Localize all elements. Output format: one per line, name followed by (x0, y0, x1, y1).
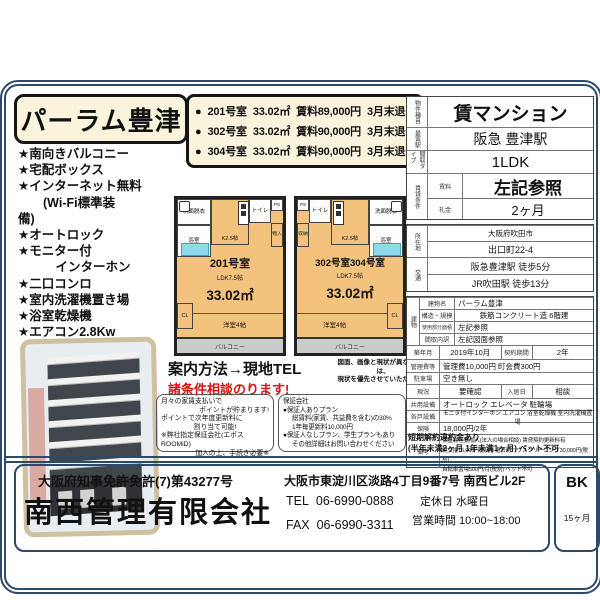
spec-label: 最寄駅 (407, 128, 428, 150)
feature-item: ★宅配ボックス (18, 162, 180, 178)
spec-table: 物件種目 賃マンション 最寄駅 阪急 豊津駅 間取タイプ 1LDK 賃貸条件 賃… (406, 96, 594, 468)
spec-group-building: 建物 建物名 パーラム豊津 構造・規模 鉄筋コンクリート造 6階建 使用部分面積 (407, 297, 593, 345)
kitchen-label: K2.5帖 (222, 236, 239, 242)
spec-group-address: 所在地 大阪府吹田市 出口町22-4 (407, 225, 593, 257)
short-term-line: (半年未満2ヶ月 1年未満1ヶ月) ペット不可 (408, 443, 598, 454)
guide-method: 案内方法→現地TEL (168, 358, 301, 379)
spec-row: 使用部分面積 左記参照 (420, 321, 593, 333)
spec-sublabel: 契約期間 (502, 346, 533, 359)
unit-area: 33.02㎡ (253, 106, 290, 118)
unit-room: 304号室 (207, 146, 246, 158)
feature-item: インターホン (18, 259, 180, 275)
license-number: 大阪府知事免許免許(7)第43277号 (38, 471, 233, 490)
spec-sublabel: 礼金 (428, 199, 463, 219)
spec-group-access: 交通 阪急豊津駅 徒歩5分 JR吹田駅 徒歩13分 (407, 257, 593, 291)
spec-sublabel: 構造・規模 (420, 310, 455, 321)
feature-list: ★南向きバルコニー ★宅配ボックス ★インターネット無料 (Wi-Fi標準装 備… (18, 146, 180, 340)
spec-value: モニタ付インターホン エアコン 浴室乾燥機 室内洗濯機置場 (440, 411, 593, 422)
spec-sublabel: 各戸設備 (407, 411, 440, 422)
short-term-note: 短期解約違約金あり (半年未満2ヶ月 1年未満1ヶ月) ペット不可 (408, 432, 598, 454)
toilet-label: トイレ (252, 208, 269, 214)
plan-layout: LDK7.5帖 (303, 271, 397, 280)
tel-label: TEL (286, 494, 309, 508)
spec-row-layout: 間取タイプ 1LDK (407, 150, 593, 173)
spec-value: 鉄筋コンクリート造 6階建 (455, 310, 593, 321)
guarantor-info-box: 保証会社 ●保証人ありプラン 総賃料(家賃、共益費を含む)の30% 1年毎更新料… (278, 394, 406, 452)
spec-row-rent: 賃料 左記参照 (428, 174, 593, 198)
room-divider (297, 313, 387, 314)
closet-label: CL (391, 313, 398, 319)
spec-label: 物件種目 (407, 97, 428, 127)
ps-label: PS (300, 203, 306, 208)
spec-value: 阪急豊津駅 徒歩5分 (428, 258, 593, 274)
spec-row-unit-equip: 各戸設備 モニタ付インターホン エアコン 浴室乾燥機 室内洗濯機置場 (407, 410, 593, 422)
ps-cell: PS (297, 199, 309, 211)
spec-value: 空き無し (440, 373, 593, 384)
closed-day: 定休日 水曜日 (420, 493, 489, 509)
spec-label: 間取タイプ (407, 151, 428, 173)
spec-group-terms: 賃貸条件 賃料 左記参照 礼金 2ヶ月 (407, 173, 593, 219)
balcony-label: バルコニー (215, 342, 245, 351)
guarantor-line: ●保証人ありプラン (283, 407, 401, 416)
spec-label: 交通 (407, 258, 428, 291)
toilet-cell: トイレ (309, 199, 331, 223)
feature-item: ★浴室乾燥機 (18, 308, 180, 324)
spec-row-status: 現況 要確認 入居日 相談 (407, 384, 593, 398)
plan-room-number: 201号室 (183, 255, 277, 271)
spec-sublabel: 管理費等 (407, 360, 440, 372)
spec-sublabel: 間取内訳 (420, 334, 455, 345)
spec-sublabel: 現況 (407, 385, 440, 398)
spec-row-station: 最寄駅 阪急 豊津駅 (407, 127, 593, 150)
spec-value: 賃マンション (428, 97, 593, 127)
spec-row: 建物名 パーラム豊津 (420, 298, 593, 309)
spec-sublabel: 共用設備 (407, 399, 440, 410)
company-address: 大阪市東淀川区淡路4丁目9番7号 南西ビル2F (284, 472, 525, 489)
feature-item: ★室内洗濯機置き場 (18, 292, 180, 308)
plan-main-label: 302号室304号室 LDK7.5帖 33.02㎡ (303, 255, 397, 302)
feature-item: (Wi-Fi標準装 (18, 195, 180, 211)
storage-label: 物入 (272, 232, 282, 237)
spec-sublabel: 築年月 (407, 346, 440, 359)
kitchen-label: K2.5帖 (342, 236, 359, 242)
unit-listing-box: ●201号室33.02㎡賃料89,000円3月末退去 ●302号室33.02㎡賃… (186, 94, 424, 168)
spec-row: 阪急豊津駅 徒歩5分 (428, 258, 593, 274)
floorplan-201: 洗面脱衣 浴室 K2.5帖 トイレ PS 物入 201号室 LDK7.5帖 33… (174, 196, 286, 356)
unit-rent: 賃料90,000円 (296, 126, 361, 138)
spec-value: 左記参照 (463, 174, 593, 198)
unit-room: 201号室 (207, 106, 246, 118)
points-line: ポイントが貯まります! (161, 407, 269, 416)
fax-number: 06-6990-3311 (317, 518, 394, 532)
guarantor-title: 保証会社 (283, 398, 401, 407)
bk-label: BK (556, 474, 598, 491)
storage-label: 収納 (298, 232, 308, 237)
spec-label: 賃貸条件 (407, 174, 428, 219)
spec-row-fees: 管理費等 管理費10,000円 町会費300円 (407, 359, 593, 372)
kitchen-stove-icon (238, 201, 249, 225)
unit-listing-row: ●302号室33.02㎡賃料90,000円3月末退去 (195, 122, 415, 142)
spec-row-built: 築年月 2019年10月 契約期間 2年 (407, 345, 593, 359)
ps-label: PS (274, 203, 280, 208)
washer-icon (179, 201, 190, 212)
balcony-strip: バルコニー (297, 337, 403, 353)
closet-cell: CL (177, 303, 193, 329)
spec-sublabel: 入居日 (502, 385, 533, 398)
points-line: ※弊社指定保証会社(エポスROOMiD) (161, 432, 269, 449)
balcony-strip: バルコニー (177, 337, 283, 353)
feature-item: ★南向きバルコニー (18, 146, 180, 162)
feature-item: ★オートロック (18, 227, 180, 243)
spec-sublabel: 賃料 (428, 174, 463, 198)
spec-sublabel: 建物名 (420, 298, 455, 309)
business-hours: 営業時間 10:00~18:00 (412, 512, 521, 528)
spec-value: 2年 (533, 346, 594, 359)
spec-value: 左記参照 (455, 322, 593, 333)
spec-row: 大阪府吹田市 (428, 226, 593, 241)
fax-label: FAX (286, 518, 310, 532)
room-divider (193, 313, 283, 314)
property-title-box: パーラム豊津 (14, 94, 188, 144)
storage-cell: 物入 (271, 223, 283, 247)
points-info-box: 月々の家賃支払いで ポイントが貯まります! ポイントで次年度更新料に 割り当て可… (156, 394, 274, 452)
plan-layout: LDK7.5帖 (183, 273, 277, 282)
spec-value: パーラム豊津 (455, 298, 593, 309)
spec-value: 2ヶ月 (463, 199, 593, 219)
footer-divider (6, 456, 596, 463)
points-line: 月々の家賃支払いで (161, 398, 269, 407)
spec-value: 阪急 豊津駅 (428, 128, 593, 150)
spec-value: 1LDK (428, 151, 593, 173)
unit-rent: 賃料90,000円 (296, 146, 361, 158)
spec-row-type: 物件種目 賃マンション (407, 97, 593, 127)
guarantor-line: ●保証人なしプラン、学生プランもあり (283, 432, 401, 441)
unit-listing-row: ●304号室33.02㎡賃料90,000円3月末退去 (195, 142, 415, 162)
unit-listing-row: ●201号室33.02㎡賃料89,000円3月末退去 (195, 102, 415, 122)
spec-value: 管理費10,000円 町会費300円 (440, 360, 593, 372)
toilet-label: トイレ (312, 208, 329, 214)
unit-rent: 賃料89,000円 (296, 106, 361, 118)
tel-line: TEL 06-6990-0888 (286, 494, 394, 508)
spec-label: 所在地 (407, 226, 428, 257)
bk-sub-label: 15ヶ月 (556, 512, 598, 524)
spec-box-top: 物件種目 賃マンション 最寄駅 阪急 豊津駅 間取タイプ 1LDK 賃貸条件 賃… (406, 96, 594, 220)
guarantor-line: 総賃料(家賃、共益費を含む)の30% (283, 415, 401, 424)
plan-area: 33.02㎡ (303, 282, 397, 302)
unit-bullet: ● (195, 106, 201, 118)
spec-value: 大阪府吹田市 (428, 226, 593, 241)
guarantor-line: その他詳細はお問い合わせください (283, 441, 401, 450)
bk-box: BK 15ヶ月 (554, 464, 600, 552)
spec-row-parking: 駐車場 空き無し (407, 372, 593, 384)
spec-value: JR吹田駅 徒歩13分 (428, 275, 593, 291)
washer-icon (391, 201, 402, 212)
property-title: パーラム豊津 (20, 101, 181, 138)
spec-value: 要確認 (440, 385, 502, 398)
company-name: 南西管理有限会社 (24, 489, 272, 531)
kitchen-stove-icon (333, 201, 344, 225)
closet-cell: CL (387, 303, 403, 329)
fax-line: FAX 06-6990-3311 (286, 518, 394, 532)
unit-bullet: ● (195, 126, 201, 138)
plan-main-label: 201号室 LDK7.5帖 33.02㎡ (183, 255, 277, 304)
feature-item: 備) (18, 211, 180, 227)
spec-row: 出口町22-4 (428, 241, 593, 257)
unit-room: 302号室 (207, 126, 246, 138)
bedroom-label: 洋室4帖 (223, 319, 246, 329)
spec-value: 左記図面参照 (455, 334, 593, 345)
floorplan-302-304: PS トイレ K2.5帖 洗面脱衣 浴室 収納 302号室304号室 LDK7.… (294, 196, 406, 356)
points-line: ポイントで次年度更新料に (161, 415, 269, 424)
unit-area: 33.02㎡ (253, 126, 290, 138)
spec-sublabel: 使用部分面積 (420, 322, 455, 333)
unit-area: 33.02㎡ (253, 146, 290, 158)
spec-row: JR吹田駅 徒歩13分 (428, 274, 593, 291)
plan-area: 33.02㎡ (183, 284, 277, 304)
spec-value: 2019年10月 (440, 346, 502, 359)
spec-row-key: 礼金 2ヶ月 (428, 198, 593, 219)
ps-cell: PS (271, 199, 283, 211)
toilet-cell: トイレ (249, 199, 271, 223)
tel-number: 06-6990-0888 (316, 494, 394, 508)
short-term-line: 短期解約違約金あり (408, 432, 598, 443)
feature-item: ★二口コンロ (18, 276, 180, 292)
floorplans: 洗面脱衣 浴室 K2.5帖 トイレ PS 物入 201号室 LDK7.5帖 33… (174, 196, 410, 356)
closet-label: CL (181, 313, 188, 319)
spec-box-location: 所在地 大阪府吹田市 出口町22-4 交通 阪急豊津駅 徒歩5分 JR吹田駅 徒… (406, 224, 594, 292)
flyer-sheet: パーラム豊津 ★南向きバルコニー ★宅配ボックス ★インターネット無料 (Wi-… (4, 84, 598, 590)
bedroom-label: 洋室4帖 (323, 319, 346, 329)
storage-cell: 収納 (297, 223, 309, 247)
spec-row: 間取内訳 左記図面参照 (420, 333, 593, 345)
unit-bullet: ● (195, 146, 201, 158)
balcony-label: バルコニー (335, 342, 365, 351)
flyer-page: パーラム豊津 ★南向きバルコニー ★宅配ボックス ★インターネット無料 (Wi-… (0, 0, 600, 600)
feature-item: ★モニター付 (18, 243, 180, 259)
spec-value: 相談 (533, 385, 594, 398)
plan-room-number: 302号室304号室 (303, 255, 397, 269)
feature-item: ★インターネット無料 (18, 178, 180, 194)
spec-sublabel: 駐車場 (407, 373, 440, 384)
spec-label: 建物 (407, 298, 420, 345)
company-info-box: 大阪府知事免許免許(7)第43277号 南西管理有限会社 大阪市東淀川区淡路4丁… (14, 464, 550, 552)
spec-value: 出口町22-4 (428, 242, 593, 257)
spec-row: 構造・規模 鉄筋コンクリート造 6階建 (420, 309, 593, 321)
